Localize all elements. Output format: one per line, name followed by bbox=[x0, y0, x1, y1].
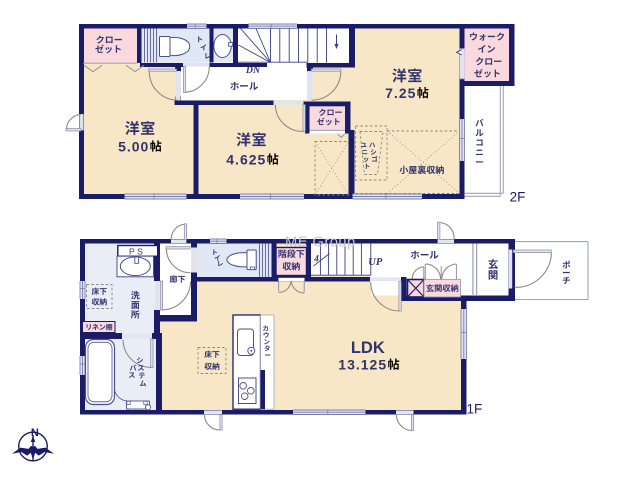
svg-text:7.25: 7.25 bbox=[385, 85, 416, 101]
svg-text:ME Group: ME Group bbox=[285, 235, 356, 251]
svg-text:N: N bbox=[31, 427, 39, 439]
svg-text:5.00: 5.00 bbox=[118, 138, 149, 154]
svg-text:2F: 2F bbox=[510, 190, 526, 205]
svg-text:4.625: 4.625 bbox=[226, 151, 266, 167]
svg-text:LDK: LDK bbox=[351, 339, 385, 357]
svg-text:UP: UP bbox=[368, 257, 383, 268]
svg-text:DN: DN bbox=[245, 65, 261, 76]
svg-text:13.125: 13.125 bbox=[338, 356, 387, 372]
svg-text:4: 4 bbox=[313, 254, 319, 264]
svg-text:1F: 1F bbox=[467, 402, 483, 417]
svg-text:PS: PS bbox=[129, 246, 145, 256]
